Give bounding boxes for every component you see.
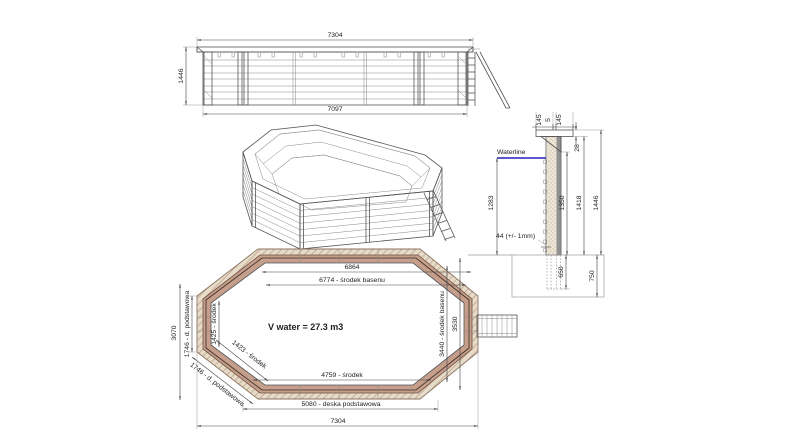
- elevation-view: 7304 7097 1446: [178, 32, 510, 117]
- elevation-dimensions: 7304 7097 1446: [178, 32, 473, 117]
- elevation-cap-right-end: [467, 47, 473, 52]
- plan-ladder: [477, 315, 517, 337]
- section-cap-dims: 145 5 145: [532, 112, 577, 130]
- isometric-view: [243, 125, 455, 249]
- iso-inner-wall: [255, 130, 430, 186]
- plan-dim-bottom-width: 7304: [330, 418, 345, 425]
- plan-dim-bottom-base: 5080 - deska podstawowa: [302, 401, 381, 408]
- elevation-planks: [203, 60, 467, 99]
- pool-technical-drawing: 7304 7097 1446: [0, 0, 794, 446]
- elevation-rail-clips: [218, 52, 444, 57]
- elevation-top-cap: [197, 47, 473, 52]
- section-dim-water-depth: 1283: [488, 195, 495, 210]
- section-dim-wall-height: 1350: [559, 195, 566, 210]
- section-waterline-label: Waterline: [497, 149, 526, 156]
- elevation-cap-left-end: [197, 47, 203, 52]
- iso-pool-floor: [272, 155, 412, 210]
- plan-dim-outer-height: 3530: [452, 316, 459, 331]
- elevation-dim-height: 1446: [178, 68, 185, 83]
- plan-dim-left-span: 3070: [171, 325, 178, 340]
- plan-volume-label: V water = 27.3 m3: [268, 322, 343, 332]
- plan-view: V water = 27.3 m3 6864 6774 - środek bas…: [171, 249, 517, 429]
- section-dim-28: 28: [573, 122, 604, 152]
- technical-drawing-page: 7304 7097 1446: [0, 0, 794, 446]
- section-plank-tolerance: 44 (+/- 1mm): [496, 233, 535, 240]
- iso-wall-planks: [243, 158, 442, 242]
- section-foundation-dims: 650 750: [558, 255, 597, 297]
- plan-dim-center-width: 6774 - środek basenu: [319, 277, 385, 284]
- plan-dim-bottom-center: 4759 - środek: [321, 372, 363, 379]
- section-dim-height-total: 1446: [593, 195, 600, 210]
- section-dim-cap-right: 145: [556, 114, 563, 126]
- elevation-dim-top: 7304: [327, 32, 342, 39]
- section-dim-cap-drop: 28: [574, 144, 581, 152]
- plan-dim-inner-width: 6864: [344, 264, 359, 271]
- plan-dim-left-base: 1746 - d. podstawowa: [184, 291, 191, 358]
- section-cap: [536, 130, 573, 137]
- section-dim-height-upper: 1418: [576, 195, 583, 210]
- section-dim-foundation: 750: [589, 270, 596, 282]
- section-dim-cap-gap: 5: [545, 118, 552, 122]
- plan-dim-left-center: 1425 - środek: [211, 303, 218, 345]
- section-dim-embed: 650: [558, 266, 565, 278]
- section-dim-cap-left: 145: [536, 114, 543, 126]
- section-wall-core: [547, 137, 557, 256]
- plan-dim-center-height: 3440 - środek basenu: [439, 291, 446, 357]
- section-left-dims: 1283 44 (+/- 1mm): [488, 158, 551, 255]
- cross-section-view: Waterline 145 5 145: [468, 112, 604, 297]
- iso-outer-walls: [243, 152, 442, 249]
- iso-rim-inner: [255, 130, 430, 199]
- elevation-ladder: [468, 49, 510, 108]
- iso-rim-outer: [243, 125, 442, 204]
- elevation-dim-bottom: 7097: [327, 106, 342, 113]
